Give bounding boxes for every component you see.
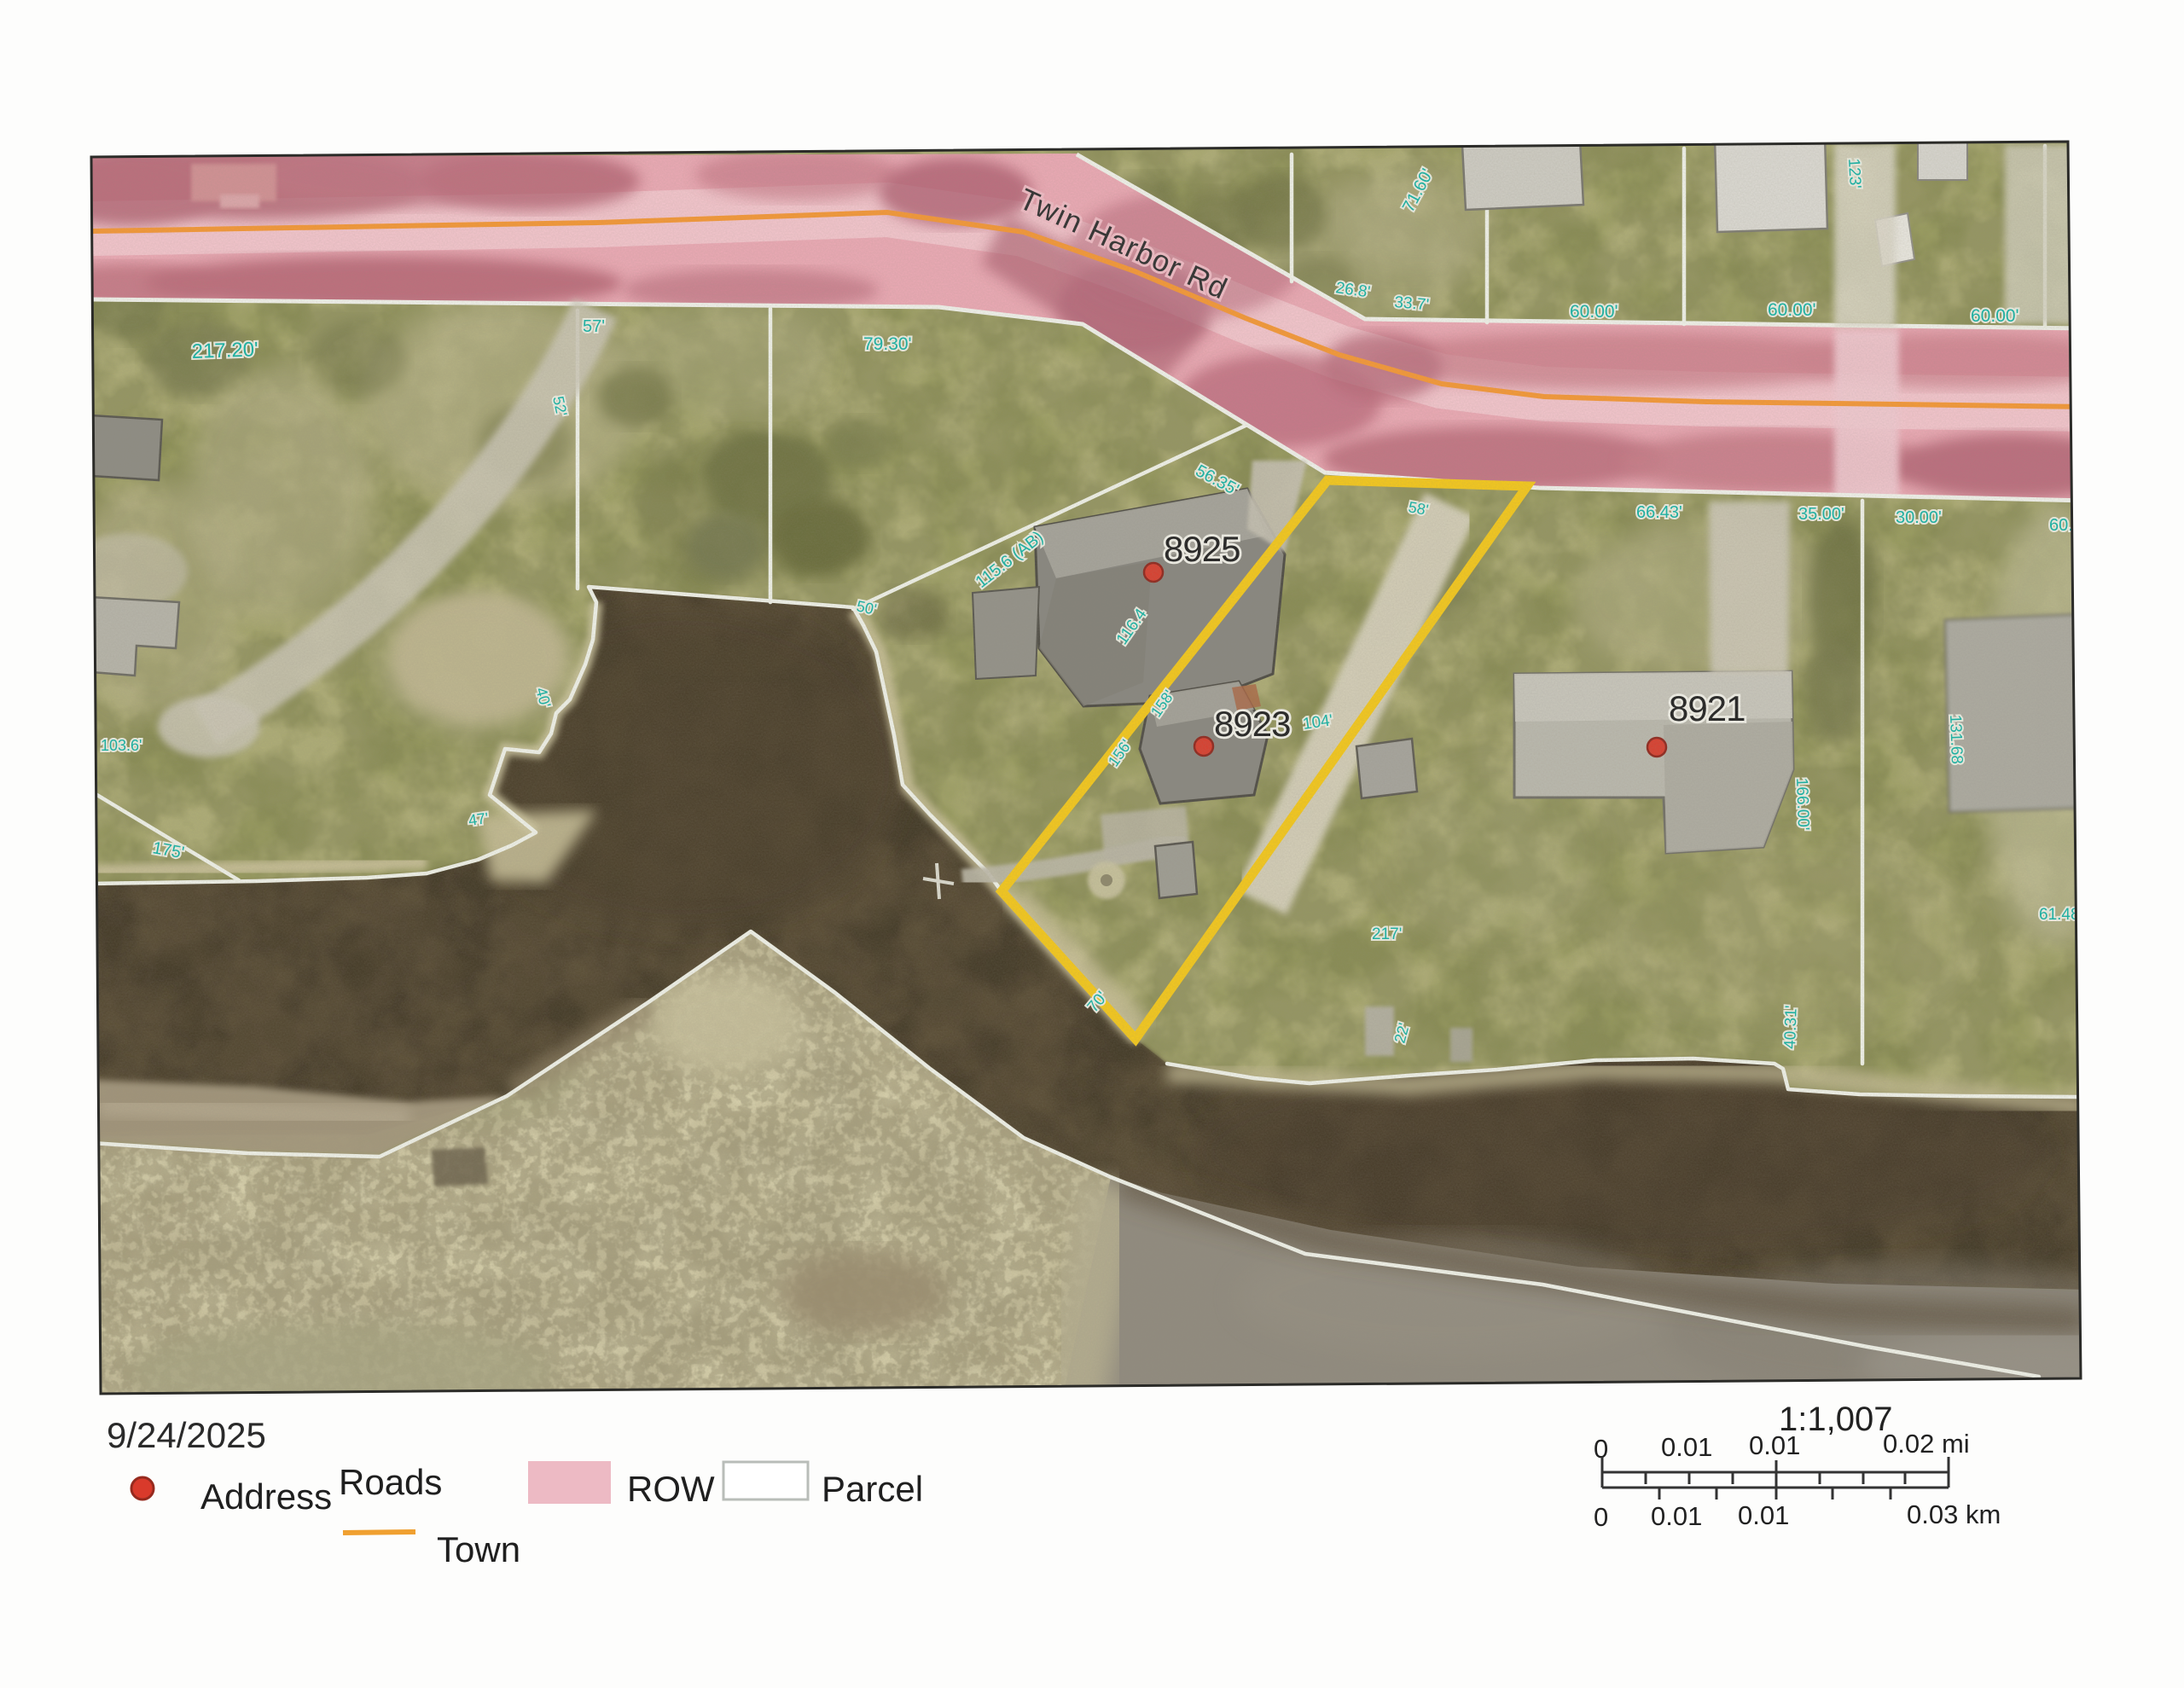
svg-text:0.01: 0.01 bbox=[1661, 1432, 1712, 1462]
svg-text:0.02 mi: 0.02 mi bbox=[1883, 1429, 1970, 1459]
svg-text:0: 0 bbox=[1594, 1502, 1608, 1532]
svg-text:0.01: 0.01 bbox=[1749, 1430, 1800, 1460]
svg-text:Town: Town bbox=[437, 1529, 520, 1569]
svg-text:Address: Address bbox=[200, 1476, 332, 1517]
svg-text:0.03 km: 0.03 km bbox=[1907, 1499, 2001, 1529]
svg-text:0.01: 0.01 bbox=[1738, 1500, 1789, 1530]
svg-text:0.01: 0.01 bbox=[1651, 1501, 1702, 1531]
svg-text:ROW: ROW bbox=[627, 1469, 715, 1509]
svg-text:Parcel: Parcel bbox=[822, 1469, 923, 1509]
svg-text:9/24/2025: 9/24/2025 bbox=[107, 1415, 266, 1455]
svg-text:Roads: Roads bbox=[339, 1462, 442, 1502]
